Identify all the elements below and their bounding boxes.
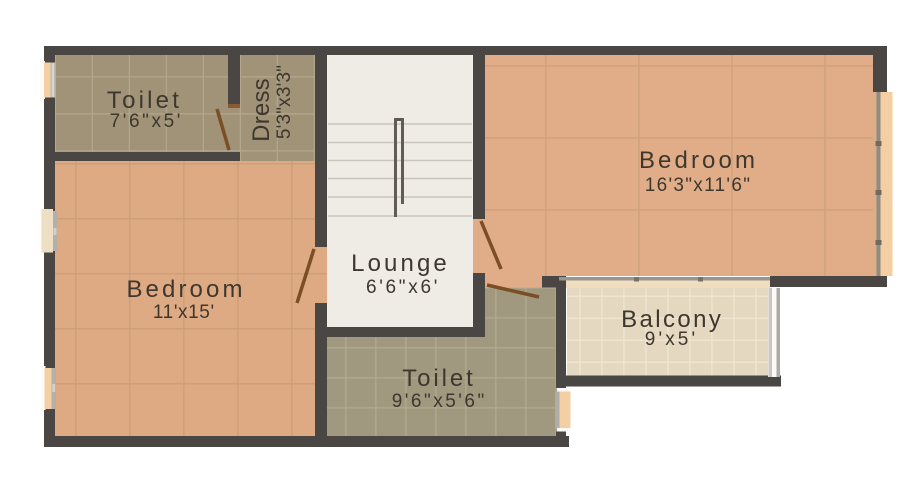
svg-text:Lounge: Lounge (351, 250, 450, 277)
svg-text:5'3"x3'3": 5'3"x3'3" (274, 65, 295, 139)
svg-text:Toilet: Toilet (107, 87, 182, 114)
svg-text:16'3"x11'6": 16'3"x11'6" (645, 175, 752, 196)
svg-text:9'6"x5'6": 9'6"x5'6" (392, 391, 487, 412)
svg-text:Bedroom: Bedroom (639, 147, 758, 174)
svg-text:Dress: Dress (248, 78, 275, 142)
svg-text:11'x15': 11'x15' (153, 302, 215, 323)
svg-text:7'6"x5': 7'6"x5' (110, 111, 183, 132)
svg-text:Toilet: Toilet (402, 365, 475, 392)
svg-text:6'6"x6': 6'6"x6' (366, 277, 440, 298)
svg-text:9'x5': 9'x5' (645, 329, 698, 350)
svg-text:Bedroom: Bedroom (126, 276, 245, 303)
